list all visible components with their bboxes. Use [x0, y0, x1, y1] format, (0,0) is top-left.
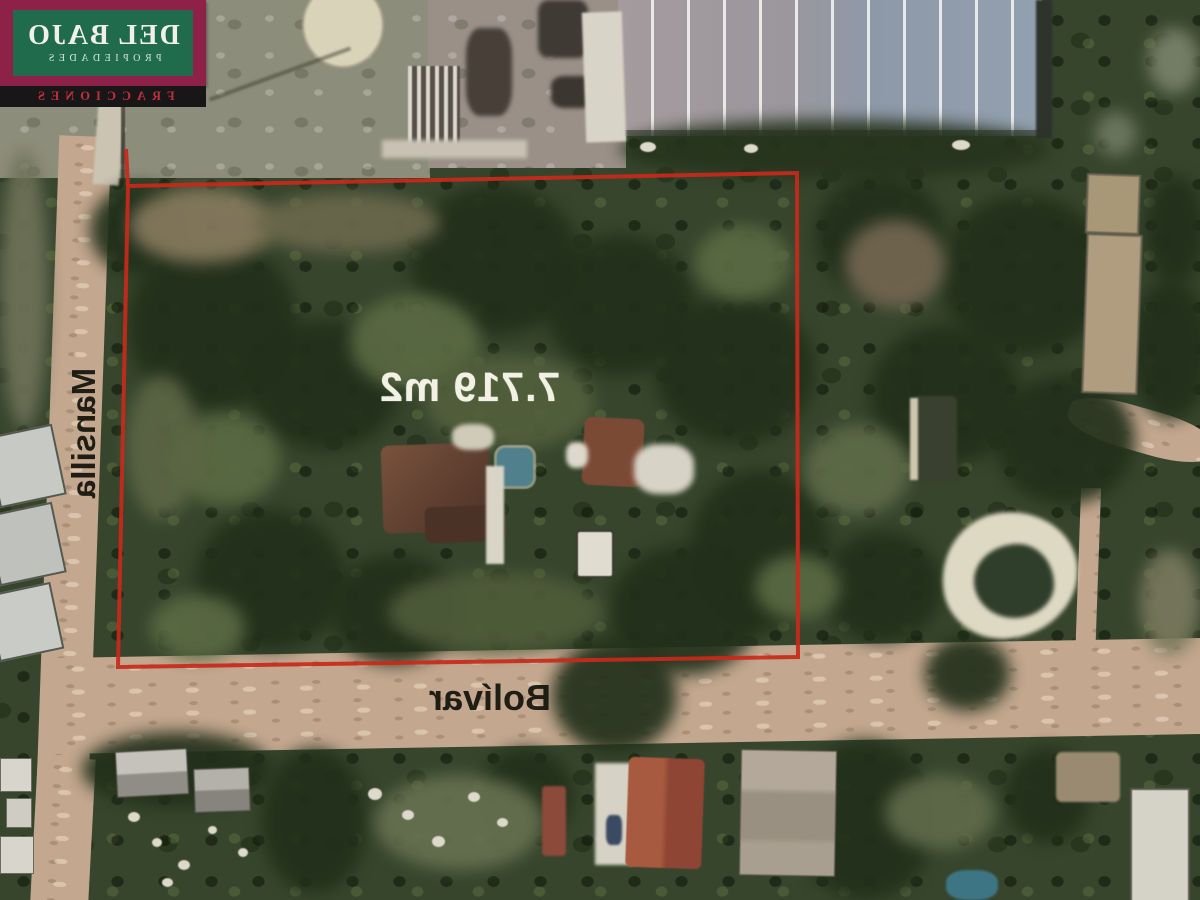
grass-field-right — [805, 425, 910, 515]
building-complex-roof — [739, 749, 837, 877]
tree-canopy — [655, 295, 815, 445]
lawn-object — [178, 860, 190, 870]
dirt-clearing — [255, 193, 440, 253]
warehouse-edge — [1036, 0, 1052, 138]
brand-name: DEL BAJO — [26, 22, 180, 50]
lawn-object — [368, 788, 382, 800]
lawn-object — [208, 826, 217, 834]
warehouse-roof — [618, 0, 1042, 136]
grass-clearing — [388, 572, 603, 652]
small-building-roof — [1085, 173, 1141, 235]
logo-inner-panel: DEL BAJO PROPIEDADES — [13, 10, 193, 76]
dirt-clearing-right — [845, 220, 945, 308]
lawn-object — [128, 812, 140, 822]
warehouse-shadow-trees — [620, 120, 1050, 178]
tree-overhang — [925, 636, 1010, 711]
white-path — [486, 466, 504, 564]
lawn-object — [432, 836, 445, 847]
white-patch — [566, 442, 588, 468]
yard-apron — [382, 140, 527, 158]
tree-canopy — [262, 748, 367, 893]
shed-white — [6, 798, 32, 828]
white-object — [640, 142, 656, 152]
tree-canopy — [1145, 175, 1200, 285]
side-path-vertical — [1075, 488, 1101, 664]
container-dark-1 — [466, 28, 512, 116]
long-building-roof — [1081, 233, 1143, 395]
kidney-pool-water — [974, 544, 1054, 618]
lawn-object — [238, 848, 248, 857]
tree-canopy — [995, 375, 1135, 505]
dirt-clearing — [130, 188, 275, 263]
lawn-object — [468, 792, 480, 802]
grass-strip-left — [0, 150, 48, 430]
grass-patch — [1148, 28, 1200, 94]
white-object — [952, 140, 970, 150]
brand-logo: DEL BAJO PROPIEDADES FRACCIONES — [0, 0, 206, 107]
grass-patch — [1095, 112, 1137, 156]
gable-house-roof — [115, 748, 189, 798]
tree-canopy — [1130, 280, 1200, 420]
street-label-bolivar: Bolívar — [429, 677, 551, 719]
grass-patch — [1140, 550, 1200, 655]
white-patch — [452, 424, 494, 450]
red-roof-small — [542, 786, 566, 856]
area-label: 7.719 m2 — [379, 364, 560, 411]
shed-white — [0, 836, 34, 874]
area-label-wrap: 7.719 m2 — [350, 360, 590, 414]
banner-text: FRACCIONES — [32, 89, 175, 104]
dark-structure — [913, 396, 957, 482]
lawn-object — [497, 818, 508, 827]
yard-white-strip — [582, 11, 627, 142]
tan-roof — [1056, 752, 1120, 802]
lawn-object — [152, 838, 162, 847]
street-label-bolivar-wrap: Bolívar — [405, 674, 575, 722]
garden-shed — [576, 530, 614, 578]
lawn-object — [402, 810, 414, 820]
red-tile-house-roof — [625, 757, 705, 870]
logo-plate: DEL BAJO PROPIEDADES — [0, 0, 206, 86]
pallet-stacks — [408, 66, 460, 148]
street-label-mansilla: Mansilla — [65, 367, 103, 497]
driveway-patch — [634, 444, 694, 494]
lawn — [375, 775, 545, 870]
dark-structure-edge — [910, 398, 918, 480]
backyard-pool — [946, 870, 998, 900]
grass-clearing — [755, 555, 840, 620]
grass-clearing — [150, 595, 245, 660]
logo-banner: FRACCIONES — [0, 86, 206, 107]
gable-house-roof — [193, 767, 251, 813]
grass-clearing — [126, 375, 198, 520]
white-building-roof — [1130, 788, 1190, 900]
satellite-photo: 7.719 m2 Mansilla Bolívar DEL BAJO PROPI… — [0, 0, 1200, 900]
white-object — [744, 144, 758, 153]
container-dark-2 — [538, 0, 588, 58]
car-navy — [606, 815, 622, 845]
lawn — [885, 775, 995, 850]
shed-white — [0, 758, 32, 792]
street-label-mansilla-wrap: Mansilla — [56, 340, 112, 525]
lawn-object — [162, 878, 173, 887]
tree-canopy — [822, 532, 942, 642]
grass-clearing — [695, 225, 790, 300]
brand-subtitle: PROPIEDADES — [44, 53, 161, 64]
